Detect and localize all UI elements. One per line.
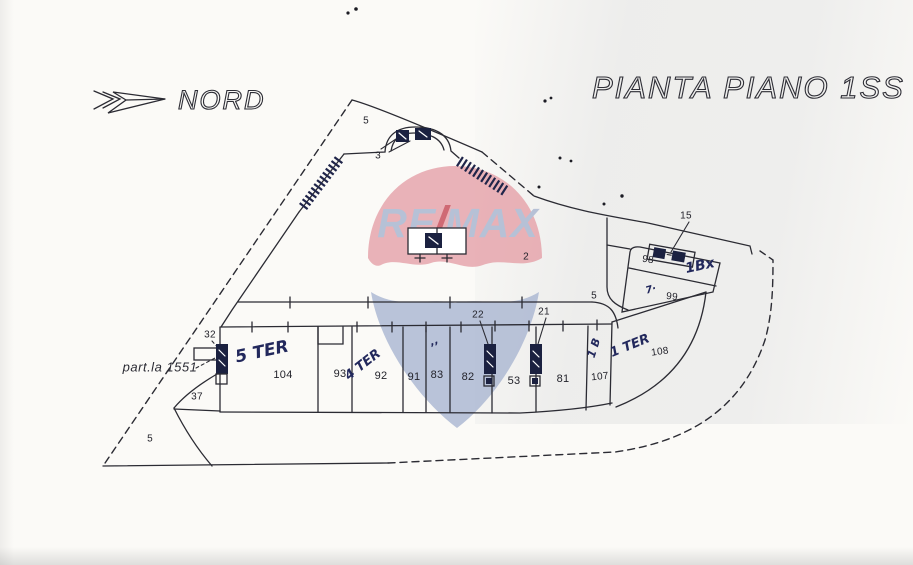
north-arrow-icon: [94, 91, 165, 113]
door-symbol-top-2: [415, 128, 431, 140]
room-label-92: 92: [375, 370, 388, 382]
scanned-floor-plan: RE/MAX: [0, 0, 913, 565]
zone-label-5-corridor: 5: [591, 291, 597, 302]
ramp-hatch-right: [459, 161, 507, 192]
room-label-91: 91: [408, 371, 421, 383]
door-symbol-top-1: [396, 130, 409, 142]
property-boundary-dashed: [103, 100, 773, 466]
room-label-104: 104: [273, 369, 292, 381]
zone-label-21: 21: [538, 307, 550, 318]
door-symbol-room53: [484, 344, 496, 386]
room-row-walls: [174, 322, 612, 466]
zone-label-22: 22: [472, 310, 484, 321]
parcel-label: part.la 1551: [123, 360, 198, 375]
page-title: PIANTA PIANO 1SS: [592, 70, 905, 106]
door-symbol-room81: [530, 344, 542, 386]
room-label-99: 99: [666, 291, 679, 303]
room-label-98: 98: [641, 254, 654, 267]
elevator-symbol: [408, 228, 466, 262]
zone-label-5-top: 5: [363, 116, 369, 127]
zone-label-5-bottom: 5: [147, 434, 153, 445]
zone-label-3: 3: [375, 151, 381, 162]
zone-label-2: 2: [523, 252, 529, 263]
north-label: NORD: [178, 85, 266, 116]
zone-label-37: 37: [191, 392, 203, 403]
room-label-53: 53: [508, 375, 521, 387]
room-label-81: 81: [557, 373, 570, 385]
zone-label-32: 32: [204, 330, 216, 341]
room-label-82: 82: [462, 371, 475, 383]
room-label-107: 107: [591, 371, 610, 384]
zone-label-15: 15: [680, 211, 692, 222]
room-label-83: 83: [431, 369, 444, 381]
